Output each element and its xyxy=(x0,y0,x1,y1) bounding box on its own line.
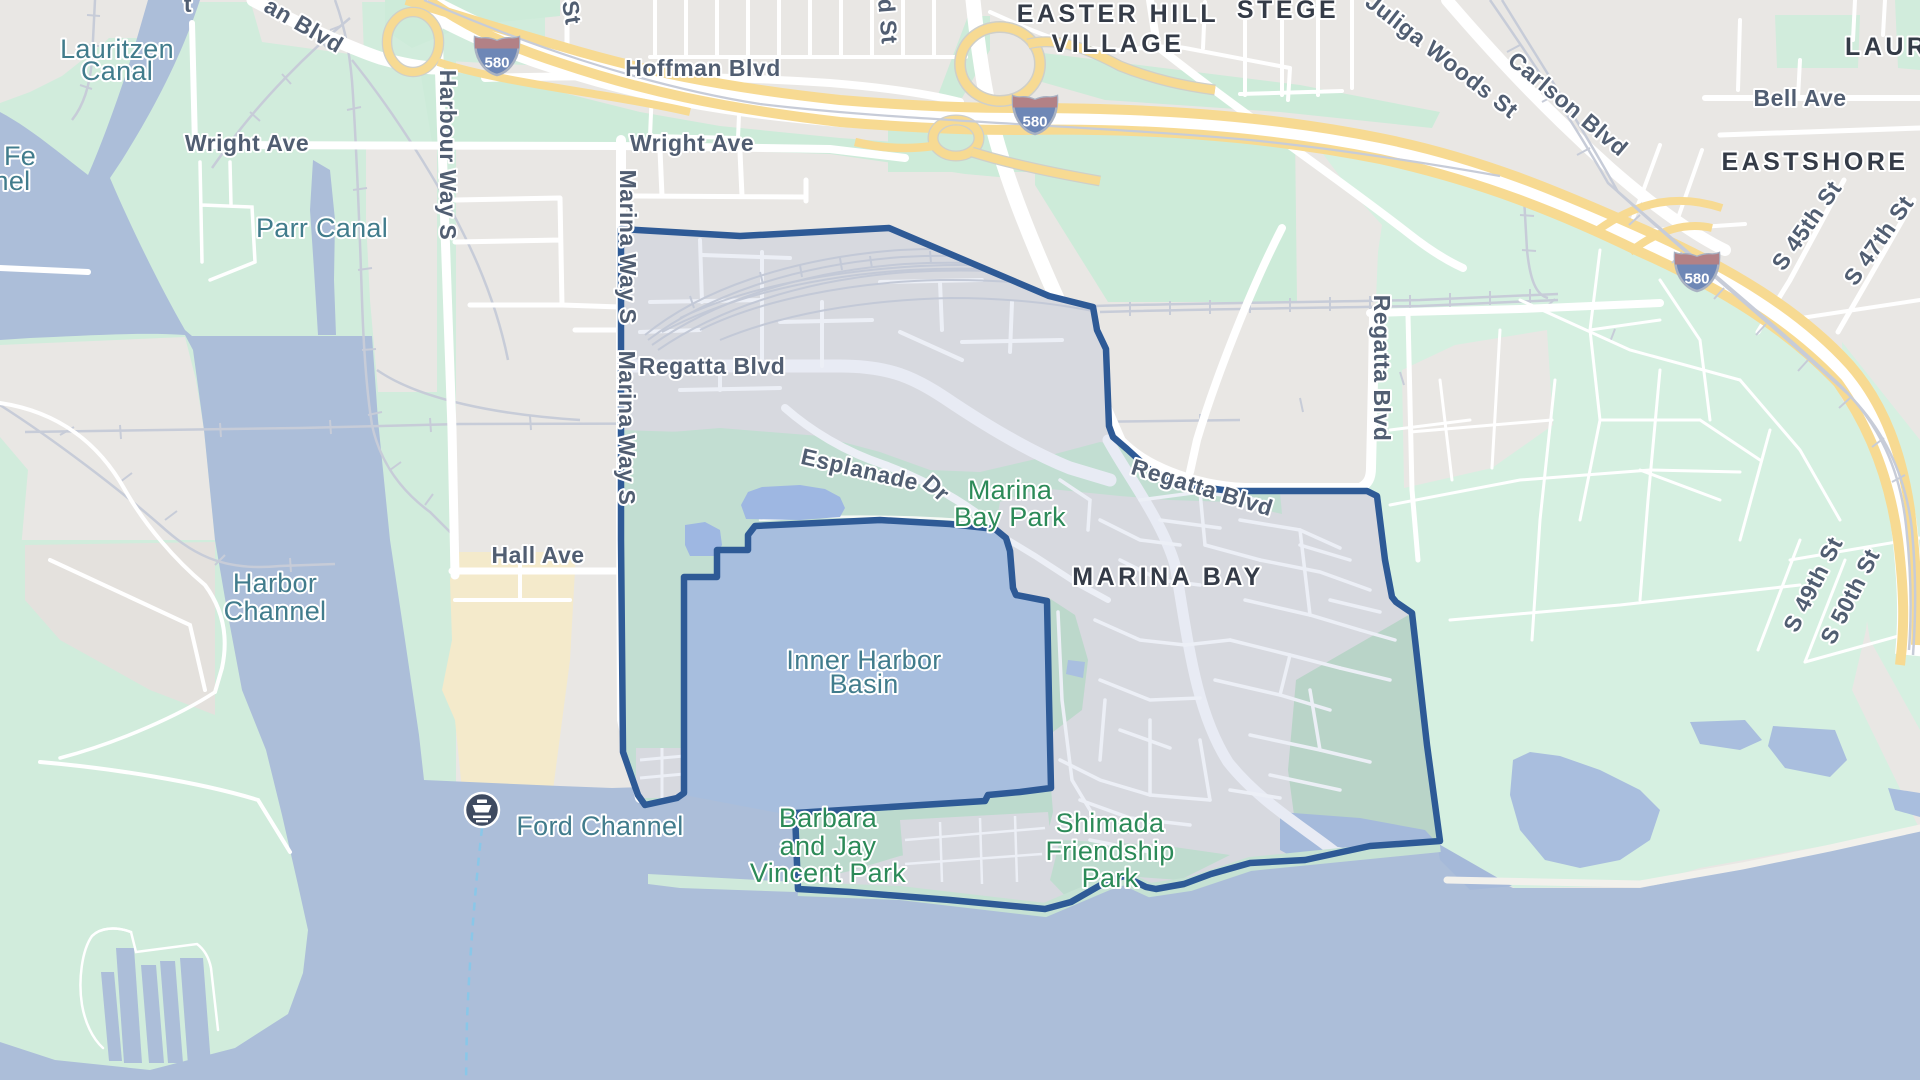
svg-text:d St: d St xyxy=(873,0,903,45)
svg-text:EASTER HILL: EASTER HILL xyxy=(1017,0,1219,28)
svg-text:Marina Way S: Marina Way S xyxy=(615,170,641,325)
svg-text:Wright Ave: Wright Ave xyxy=(185,130,309,156)
svg-text:STEGE: STEGE xyxy=(1237,0,1339,24)
svg-text:Parr Canal: Parr Canal xyxy=(256,213,388,243)
svg-text:Bell Ave: Bell Ave xyxy=(1753,85,1846,111)
svg-text:Basin: Basin xyxy=(829,669,898,699)
svg-text:Canal: Canal xyxy=(81,56,153,86)
svg-text:Hoffman Blvd: Hoffman Blvd xyxy=(625,55,781,81)
svg-text:EASTSHORE: EASTSHORE xyxy=(1721,148,1908,176)
svg-text:VILLAGE: VILLAGE xyxy=(1052,30,1185,58)
svg-text:Regatta Blvd: Regatta Blvd xyxy=(639,353,786,379)
svg-text:Park: Park xyxy=(1082,863,1139,893)
svg-text:Regatta Blvd: Regatta Blvd xyxy=(1369,295,1395,442)
svg-text:Vincent Park: Vincent Park xyxy=(750,858,906,888)
svg-text:Marina: Marina xyxy=(968,475,1053,505)
svg-text:Harbor: Harbor xyxy=(233,568,317,598)
svg-text:Barbara: Barbara xyxy=(779,803,878,833)
svg-text:Hall Ave: Hall Ave xyxy=(491,542,584,568)
svg-text:Ford Channel: Ford Channel xyxy=(516,811,683,841)
svg-text:Harbour Way S: Harbour Way S xyxy=(435,70,461,241)
svg-text:t: t xyxy=(184,0,192,17)
svg-text:LAURI: LAURI xyxy=(1845,33,1920,61)
svg-text:nel: nel xyxy=(0,166,30,196)
svg-text:MARINA BAY: MARINA BAY xyxy=(1072,563,1264,591)
svg-text:Friendship: Friendship xyxy=(1045,836,1174,866)
svg-text:Marina Way S: Marina Way S xyxy=(614,351,640,506)
svg-text:Channel: Channel xyxy=(224,596,327,626)
svg-text:Bay Park: Bay Park xyxy=(954,502,1066,532)
svg-text:580: 580 xyxy=(1022,114,1047,131)
svg-text:Shimada: Shimada xyxy=(1056,808,1165,838)
svg-text:St: St xyxy=(557,0,587,27)
svg-text:and Jay: and Jay xyxy=(780,831,877,861)
svg-text:Wright Ave: Wright Ave xyxy=(630,130,754,156)
